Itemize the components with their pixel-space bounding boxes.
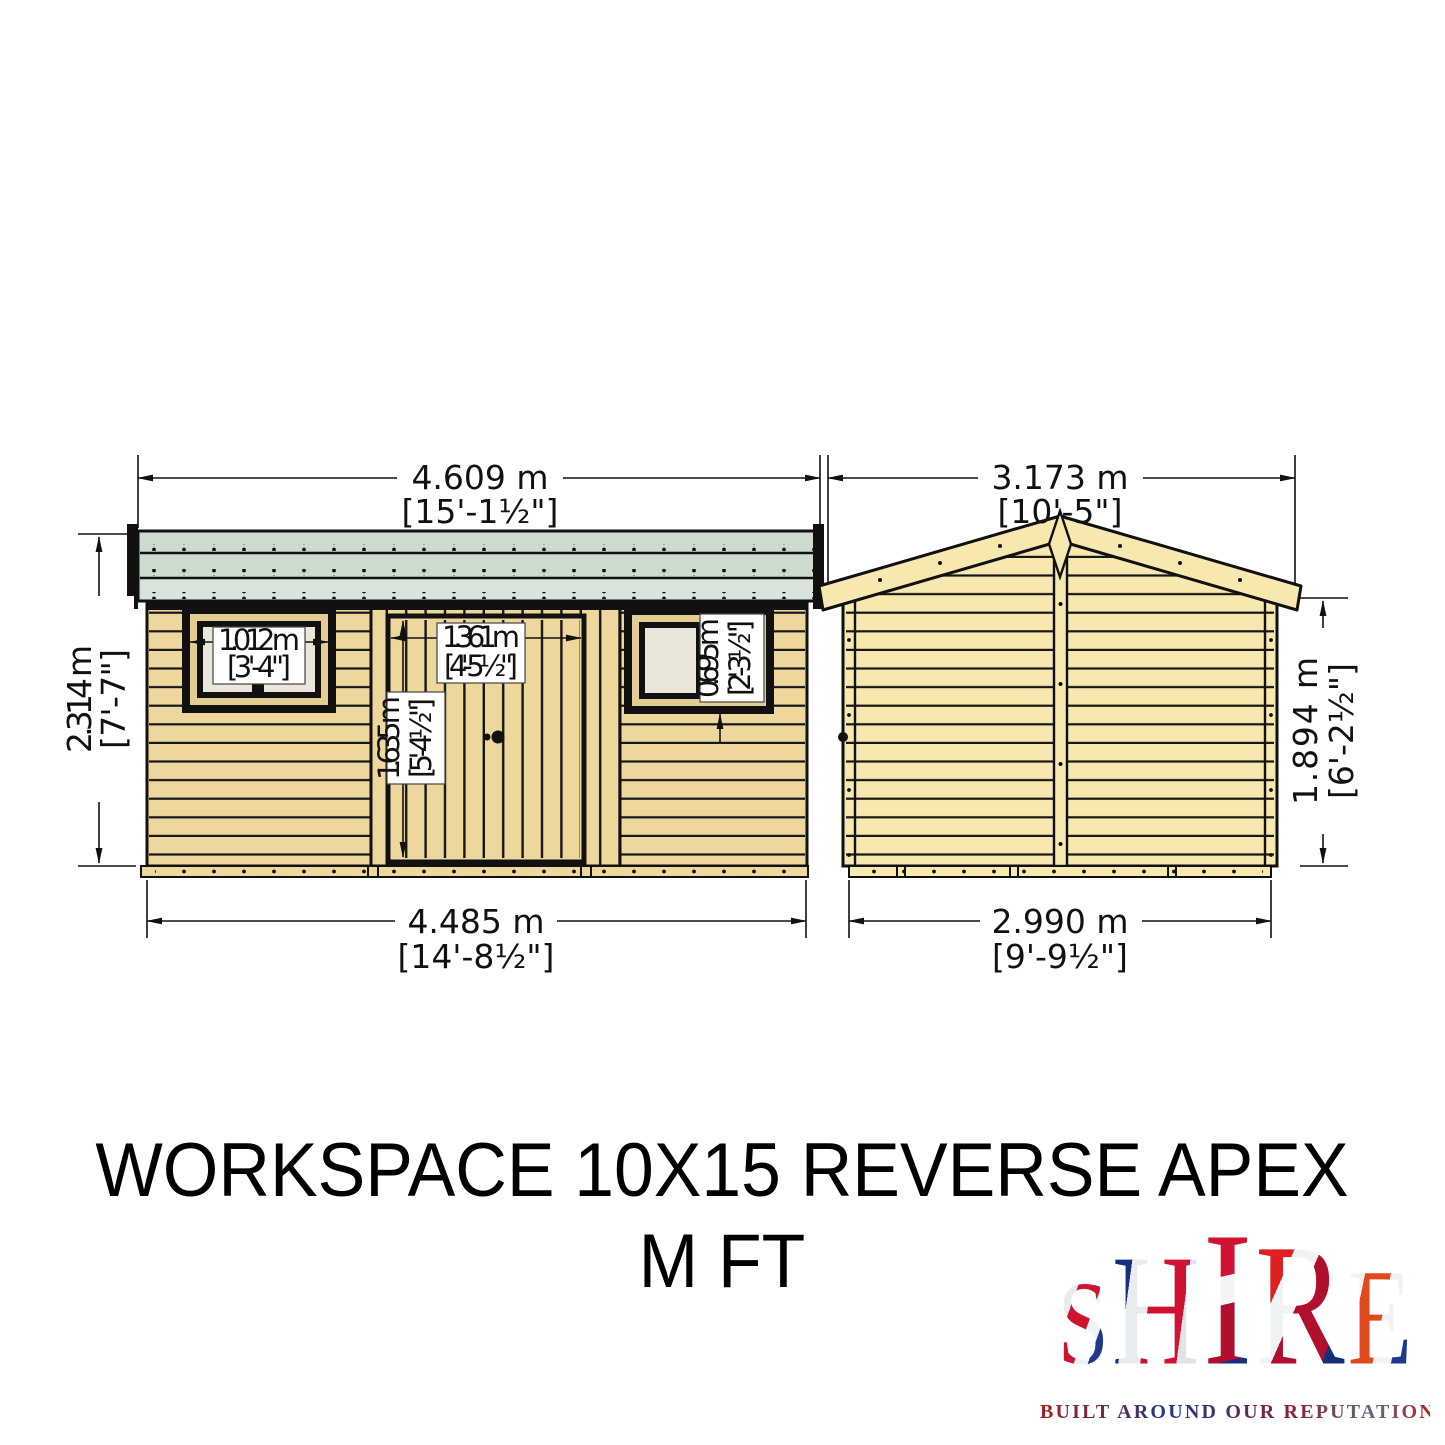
dim-door-height-m: 1.635 m	[372, 696, 406, 780]
shed-dimension-drawing-page: 4.609 m [15'-1½"] 2.314 m [7'-7"] 4.485 …	[0, 0, 1445, 1445]
dim-door-width-ft: [4'-5½"]	[444, 649, 518, 683]
drawing-units: M FT	[639, 1218, 806, 1304]
dim-side-height-ft: [6'-2½"]	[1322, 663, 1361, 799]
roof-nails-row1	[146, 544, 814, 551]
dim-side-overall-width-ft: [10'-5"]	[998, 492, 1123, 531]
dim-side-base-width-ft: [9'-9½"]	[992, 937, 1128, 976]
door-knob	[492, 731, 505, 744]
roof-nails-row2	[146, 569, 814, 576]
front-roof	[127, 524, 824, 609]
shire-logo-wordmark: S H I R E	[1040, 1204, 1430, 1396]
dim-side-height-m: 1.894 m	[1286, 657, 1325, 805]
side-knob	[838, 732, 848, 742]
dim-door-height-label: 1.635 m [5'-4½"]	[372, 696, 438, 780]
dim-front-base-width-ft: [14'-8½"]	[398, 937, 555, 976]
logo-letter-e: E	[1348, 1249, 1413, 1387]
logo-letter-s: S	[1058, 1263, 1109, 1383]
shire-logo: S H I R E BUILT AROUND OUR REPUTATION	[1040, 1235, 1430, 1430]
side-elevation	[819, 511, 1301, 877]
dim-window-height-label: 0.695 m [2'-3½"]	[691, 618, 757, 698]
front-base-nails	[155, 869, 800, 875]
side-base-nails	[858, 869, 1263, 875]
logo-tagline: BUILT AROUND OUR REPUTATION	[1040, 1401, 1430, 1424]
dim-door-height-ft: [5'-4½"]	[404, 698, 438, 778]
dim-window-width-ft: [3'-4"]	[227, 650, 291, 684]
dim-front-height-label: 2.314 m [7'-7"]	[60, 645, 133, 753]
logo-letter-i: I	[1203, 1204, 1252, 1396]
dim-front-overall-width-ft: [15'-1½"]	[402, 492, 559, 531]
logo-letter-h: H	[1112, 1232, 1200, 1391]
dim-side-height-label: 1.894 m [6'-2½"]	[1286, 657, 1361, 805]
dim-front-base-width-m: 4.485 m	[407, 902, 544, 941]
roof-nails-row3	[146, 592, 814, 599]
dim-side-base-width-m: 2.990 m	[991, 902, 1128, 941]
logo-letter-r: R	[1255, 1218, 1344, 1392]
dim-front-height-ft: [7'-7"]	[94, 649, 133, 749]
dim-window-height-m: 0.695 m	[691, 618, 725, 698]
dim-window-height-ft: [2'-3½"]	[723, 620, 757, 696]
door-keyhole	[484, 734, 491, 741]
drawing-title: WORKSPACE 10X15 REVERSE APEX	[95, 1127, 1348, 1213]
